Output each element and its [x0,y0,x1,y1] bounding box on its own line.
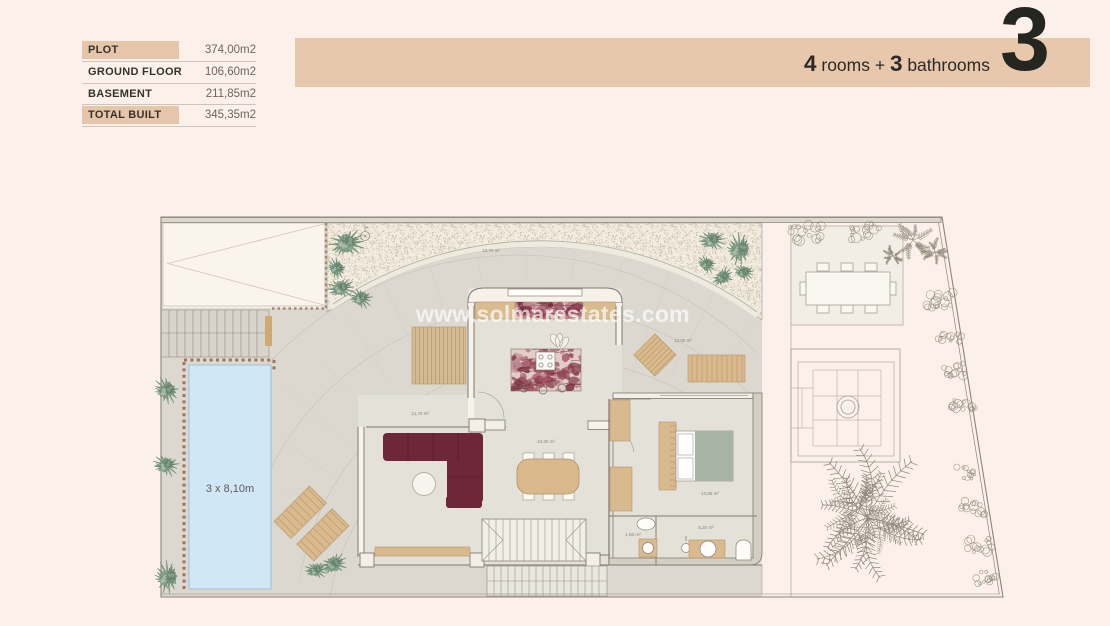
svg-text:14,70 m²: 14,70 m² [411,411,429,416]
svg-text:44,30 m²: 44,30 m² [537,439,555,444]
svg-text:3 x 8,10m: 3 x 8,10m [206,483,254,495]
svg-text:5,30 m²: 5,30 m² [698,525,714,530]
svg-text:12,85 m²: 12,85 m² [674,338,692,343]
svg-text:13,70 m²: 13,70 m² [482,248,500,253]
svg-text:1,50 m²: 1,50 m² [625,532,641,537]
svg-text:www.solmarestates.com: www.solmarestates.com [415,301,690,327]
svg-text:13,95 m²: 13,95 m² [701,491,719,496]
